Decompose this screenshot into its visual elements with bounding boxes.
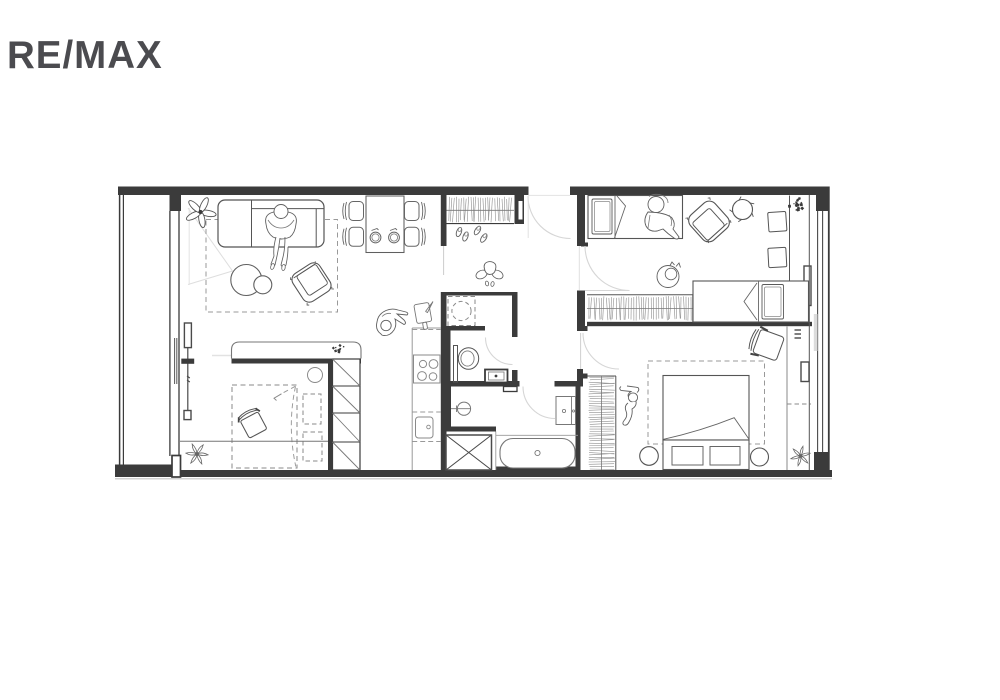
svg-text:RE/MAX: RE/MAX [7, 34, 163, 77]
